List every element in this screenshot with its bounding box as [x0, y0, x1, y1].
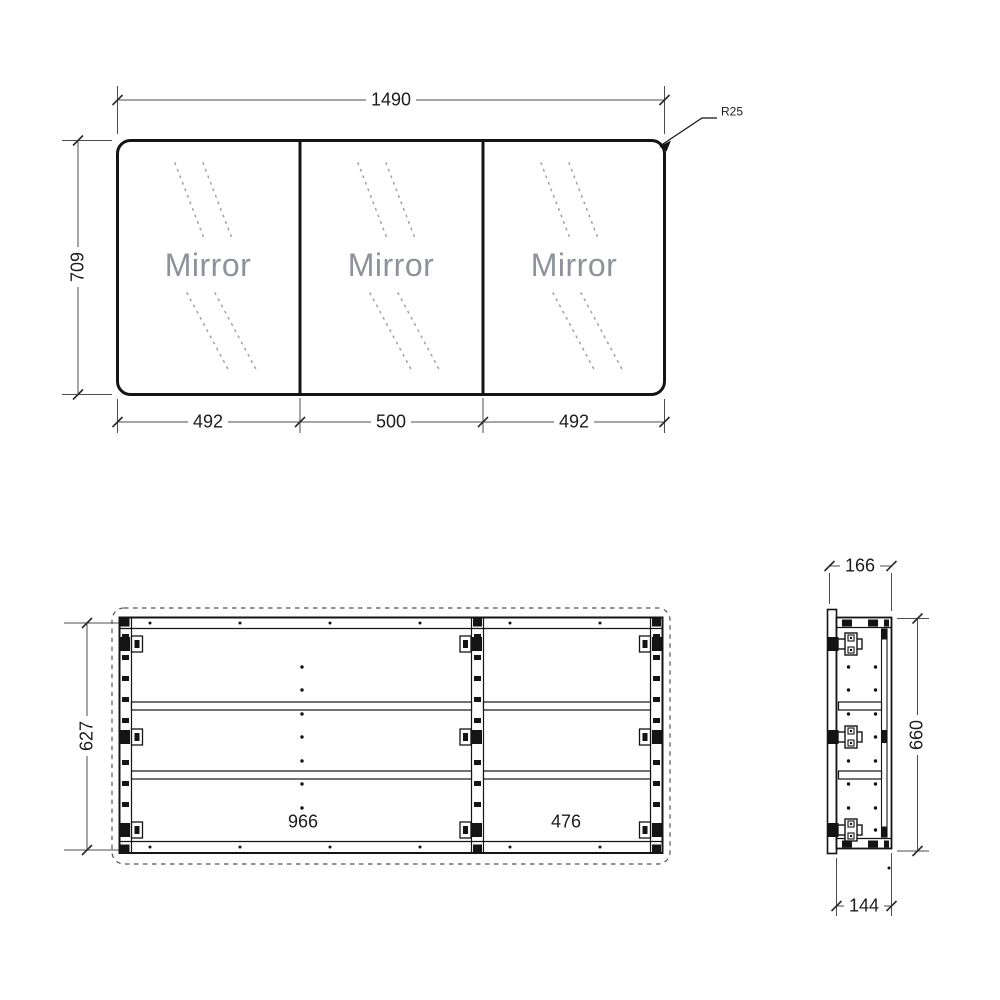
- dim-door-width-right: 492: [554, 413, 594, 432]
- dim-cabinet-depth: 144: [844, 897, 884, 916]
- corner-radius-label: R25: [719, 106, 745, 119]
- dim-overall-width: 1490: [366, 91, 416, 110]
- mirror-panel-label: Mirror: [348, 249, 435, 283]
- dim-right-bay-width: 476: [546, 813, 586, 832]
- dim-side-height: 660: [908, 715, 927, 755]
- dim-door-width-center: 500: [371, 413, 411, 432]
- dim-carcass-height: 627: [78, 716, 97, 756]
- dim-overall-height: 709: [69, 247, 88, 287]
- dim-left-bay-width: 966: [283, 813, 323, 832]
- dim-door-width-left: 492: [188, 413, 228, 432]
- drawing-linework: [0, 0, 1000, 1000]
- dim-overall-depth: 166: [840, 557, 880, 576]
- technical-drawing-sheet: 1490 709 492 500 492 R25 Mirror Mirror M…: [0, 0, 1000, 1000]
- corner-radius-leader: [660, 118, 718, 152]
- mirror-panel-label: Mirror: [165, 249, 252, 283]
- mirror-panel-label: Mirror: [531, 249, 618, 283]
